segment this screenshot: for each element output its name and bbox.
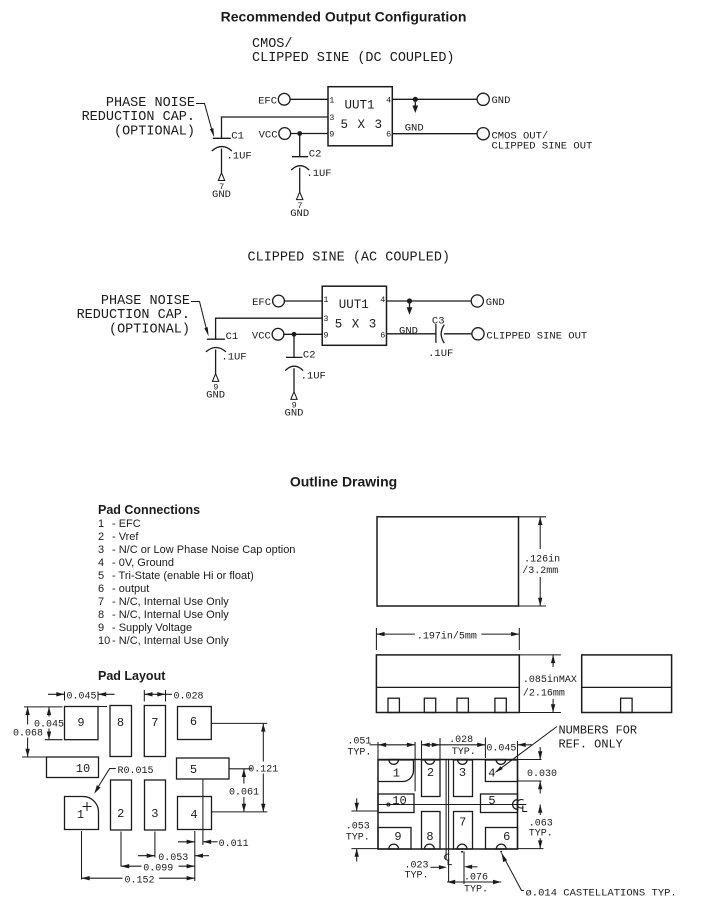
svg-text:7: 7 [98, 596, 104, 608]
svg-text:GND: GND [206, 389, 225, 401]
svg-text:GND: GND [486, 297, 505, 309]
svg-text:GND: GND [290, 208, 309, 220]
svg-text:- Tri-State (enable Hi or floa: - Tri-State (enable Hi or float) [112, 570, 254, 582]
svg-text:0.045: 0.045 [486, 744, 516, 755]
svg-text:TYP.: TYP. [405, 870, 429, 881]
svg-text:- EFC: - EFC [112, 518, 141, 530]
svg-text:.076: .076 [464, 872, 488, 883]
svg-text:.1UF: .1UF [221, 351, 246, 363]
svg-text:NUMBERS FOR: NUMBERS FOR [559, 724, 638, 738]
svg-text:4: 4 [386, 96, 391, 106]
svg-text:6: 6 [190, 715, 197, 729]
svg-text:10: 10 [392, 794, 406, 808]
svg-text:8: 8 [98, 609, 104, 621]
svg-text:(OPTIONAL): (OPTIONAL) [109, 323, 190, 338]
svg-text:PHASE NOISE: PHASE NOISE [106, 96, 195, 111]
svg-text:GND: GND [212, 189, 231, 201]
svg-text:4: 4 [380, 295, 385, 305]
svg-text:R0.015: R0.015 [118, 766, 154, 777]
svg-text:PHASE NOISE: PHASE NOISE [101, 294, 190, 309]
svg-text:CLIPPED SINE (AC COUPLED): CLIPPED SINE (AC COUPLED) [248, 251, 451, 266]
svg-text:UUT1: UUT1 [345, 99, 375, 113]
svg-text:2: 2 [117, 807, 124, 821]
svg-text:UUT1: UUT1 [339, 298, 369, 312]
svg-text:C1: C1 [231, 130, 244, 142]
svg-text:9: 9 [394, 830, 401, 844]
svg-text:7: 7 [151, 716, 158, 730]
svg-text:3: 3 [98, 544, 104, 556]
svg-text:(OPTIONAL): (OPTIONAL) [114, 125, 195, 140]
svg-text:10: 10 [76, 762, 90, 776]
svg-text:- N/C, Internal Use Only: - N/C, Internal Use Only [112, 609, 229, 621]
svg-text:EFC: EFC [252, 297, 271, 309]
svg-text:C2: C2 [309, 149, 322, 161]
svg-text:- N/C, Internal Use Only: - N/C, Internal Use Only [112, 596, 229, 608]
svg-text:.053: .053 [346, 822, 370, 833]
svg-text:C2: C2 [303, 349, 316, 361]
svg-text:5 X 3: 5 X 3 [341, 118, 384, 132]
svg-text:Pad Connections: Pad Connections [98, 503, 200, 517]
svg-text:.126in: .126in [524, 554, 560, 566]
svg-text:.1UF: .1UF [428, 348, 453, 360]
svg-text:Outline Drawing: Outline Drawing [290, 474, 397, 490]
svg-text:0.028: 0.028 [174, 691, 204, 702]
svg-text:7: 7 [459, 816, 466, 830]
svg-text:10: 10 [98, 635, 110, 647]
svg-text:9: 9 [323, 330, 328, 340]
svg-text:8: 8 [117, 716, 124, 730]
svg-text:9: 9 [329, 130, 334, 140]
svg-text:/3.2mm: /3.2mm [522, 565, 558, 577]
svg-text:3: 3 [329, 113, 334, 123]
svg-text:0.011: 0.011 [219, 839, 249, 850]
svg-text:1: 1 [98, 518, 104, 530]
svg-text:- 0V, Ground: - 0V, Ground [112, 557, 174, 569]
svg-text:CLIPPED SINE (DC COUPLED): CLIPPED SINE (DC COUPLED) [252, 51, 455, 66]
svg-text:GND: GND [492, 95, 511, 107]
svg-text:4: 4 [190, 808, 197, 822]
svg-text:TYP.: TYP. [452, 747, 476, 758]
svg-text:REF. ONLY: REF. ONLY [559, 737, 623, 751]
svg-text:6: 6 [98, 583, 104, 595]
svg-text:1: 1 [77, 808, 84, 822]
svg-text:9: 9 [77, 716, 84, 730]
svg-text:- N/C, Internal Use Only: - N/C, Internal Use Only [112, 635, 229, 647]
svg-text:4: 4 [488, 767, 495, 781]
svg-text:GND: GND [405, 122, 424, 134]
svg-text:5: 5 [190, 763, 197, 777]
svg-text:CLIPPED SINE OUT: CLIPPED SINE OUT [492, 141, 593, 153]
svg-text:0.099: 0.099 [143, 864, 173, 875]
svg-text:Recommended Output Configurati: Recommended Output Configuration [221, 9, 467, 25]
svg-text:0.152: 0.152 [125, 876, 155, 887]
svg-text:.051: .051 [347, 737, 371, 748]
svg-text:4: 4 [98, 557, 104, 569]
svg-text:- Vref: - Vref [112, 531, 139, 543]
svg-text:2: 2 [427, 766, 434, 780]
svg-text:EFC: EFC [258, 95, 277, 107]
svg-text:8: 8 [426, 830, 433, 844]
svg-text:1: 1 [329, 96, 334, 106]
svg-text:2: 2 [98, 531, 104, 543]
svg-text:.1UF: .1UF [306, 168, 331, 180]
svg-text:C1: C1 [226, 331, 239, 343]
svg-text:/2.16mm: /2.16mm [523, 687, 565, 699]
svg-text:CLIPPED SINE OUT: CLIPPED SINE OUT [486, 330, 587, 342]
svg-text:TYP.: TYP. [529, 829, 553, 840]
svg-text:9: 9 [98, 622, 104, 634]
svg-text:6: 6 [380, 330, 385, 340]
svg-text:0.068: 0.068 [13, 729, 43, 740]
svg-text:6: 6 [386, 130, 391, 140]
svg-text:GND: GND [399, 326, 418, 338]
svg-text:0.045: 0.045 [67, 691, 97, 702]
svg-text:ø.014 CASTELLATIONS TYP.: ø.014 CASTELLATIONS TYP. [526, 888, 677, 900]
svg-text:5 X 3: 5 X 3 [335, 317, 378, 331]
svg-text:VCC: VCC [259, 130, 278, 142]
svg-text:C3: C3 [432, 316, 445, 328]
svg-text:REDUCTION CAP.: REDUCTION CAP. [77, 308, 190, 323]
svg-text:.1UF: .1UF [227, 151, 252, 163]
svg-text:3: 3 [151, 807, 158, 821]
svg-text:3: 3 [459, 766, 466, 780]
svg-text:TYP.: TYP. [464, 884, 488, 895]
svg-text:5: 5 [488, 794, 495, 808]
svg-text:0.121: 0.121 [248, 765, 278, 776]
svg-text:1: 1 [323, 295, 328, 305]
svg-text:.1UF: .1UF [301, 371, 326, 383]
svg-text:CMOS/: CMOS/ [252, 37, 293, 52]
svg-text:TYP.: TYP. [346, 832, 370, 843]
svg-text:0.053: 0.053 [158, 853, 188, 864]
svg-text:REDUCTION CAP.: REDUCTION CAP. [82, 110, 195, 125]
svg-text:0.061: 0.061 [229, 788, 259, 799]
svg-text:0.030: 0.030 [527, 769, 557, 780]
svg-text:- Supply Voltage: - Supply Voltage [112, 622, 192, 634]
svg-text:TYP.: TYP. [347, 748, 371, 759]
svg-text:1: 1 [393, 767, 400, 781]
svg-text:VCC: VCC [252, 330, 271, 342]
svg-text:Pad Layout: Pad Layout [98, 669, 166, 683]
svg-text:.085inMAX: .085inMAX [523, 674, 577, 686]
svg-text:- N/C or Low Phase Noise Cap o: - N/C or Low Phase Noise Cap option [112, 544, 295, 556]
svg-text:GND: GND [285, 407, 304, 419]
svg-text:3: 3 [323, 314, 328, 324]
svg-text:.028: .028 [449, 735, 473, 746]
svg-text:- output: - output [112, 583, 149, 595]
svg-text:6: 6 [503, 830, 510, 844]
svg-text:.197in/5mm: .197in/5mm [417, 630, 477, 642]
svg-text:5: 5 [98, 570, 104, 582]
